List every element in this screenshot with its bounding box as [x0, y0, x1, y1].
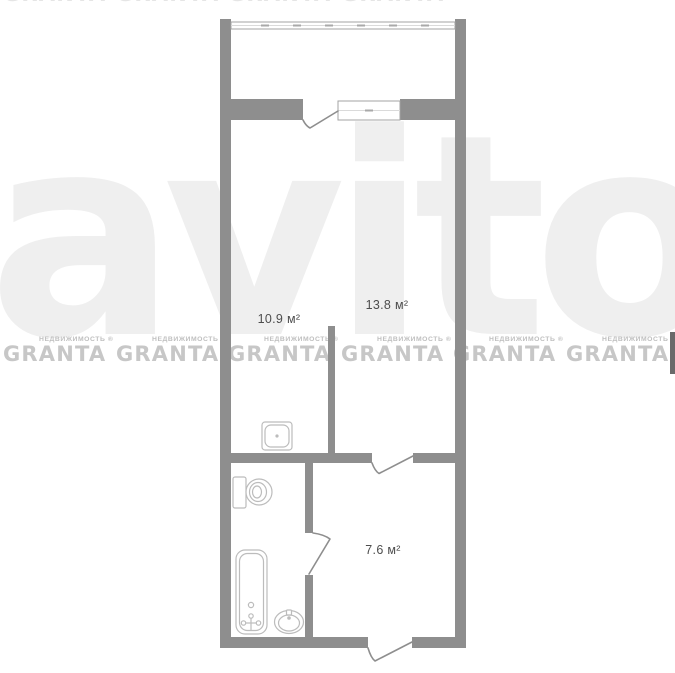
wall-balcony-left: [220, 99, 303, 120]
hall-door-leaf: [372, 456, 413, 474]
entrance-door-leaf: [368, 642, 412, 661]
door-swing-icon: [303, 111, 413, 661]
wall-mid-right: [413, 453, 455, 463]
bathtub-icon: [236, 550, 267, 634]
wall-bath-upper: [305, 463, 313, 533]
edge-artifact: [670, 332, 675, 374]
window-icon: [338, 101, 400, 120]
room-label-living: 13.8 м²: [345, 298, 429, 312]
balcony-door-leaf: [303, 111, 338, 128]
wall-room-partition: [328, 326, 335, 453]
floor-plan-canvas: avito НЕДВИЖИМОСТЬ ®GRANTA НЕДВИЖИМОСТЬ …: [0, 0, 675, 673]
wall-bath-lower: [305, 575, 313, 637]
wall-mid-left: [231, 453, 372, 463]
washbasin-icon: [275, 610, 304, 634]
wall-bottom-right: [412, 637, 466, 648]
room-label-kitchen: 10.9 м²: [237, 312, 321, 326]
wall-bottom-left: [220, 637, 368, 648]
sink-icon: [262, 422, 292, 450]
wall-balcony-right: [400, 99, 466, 120]
room-label-hall: 7.6 м²: [341, 543, 425, 557]
toilet-icon: [233, 477, 272, 508]
bathroom-door-leaf: [309, 533, 330, 574]
floor-plan: [0, 0, 675, 673]
balcony-window-icon: [231, 22, 455, 29]
